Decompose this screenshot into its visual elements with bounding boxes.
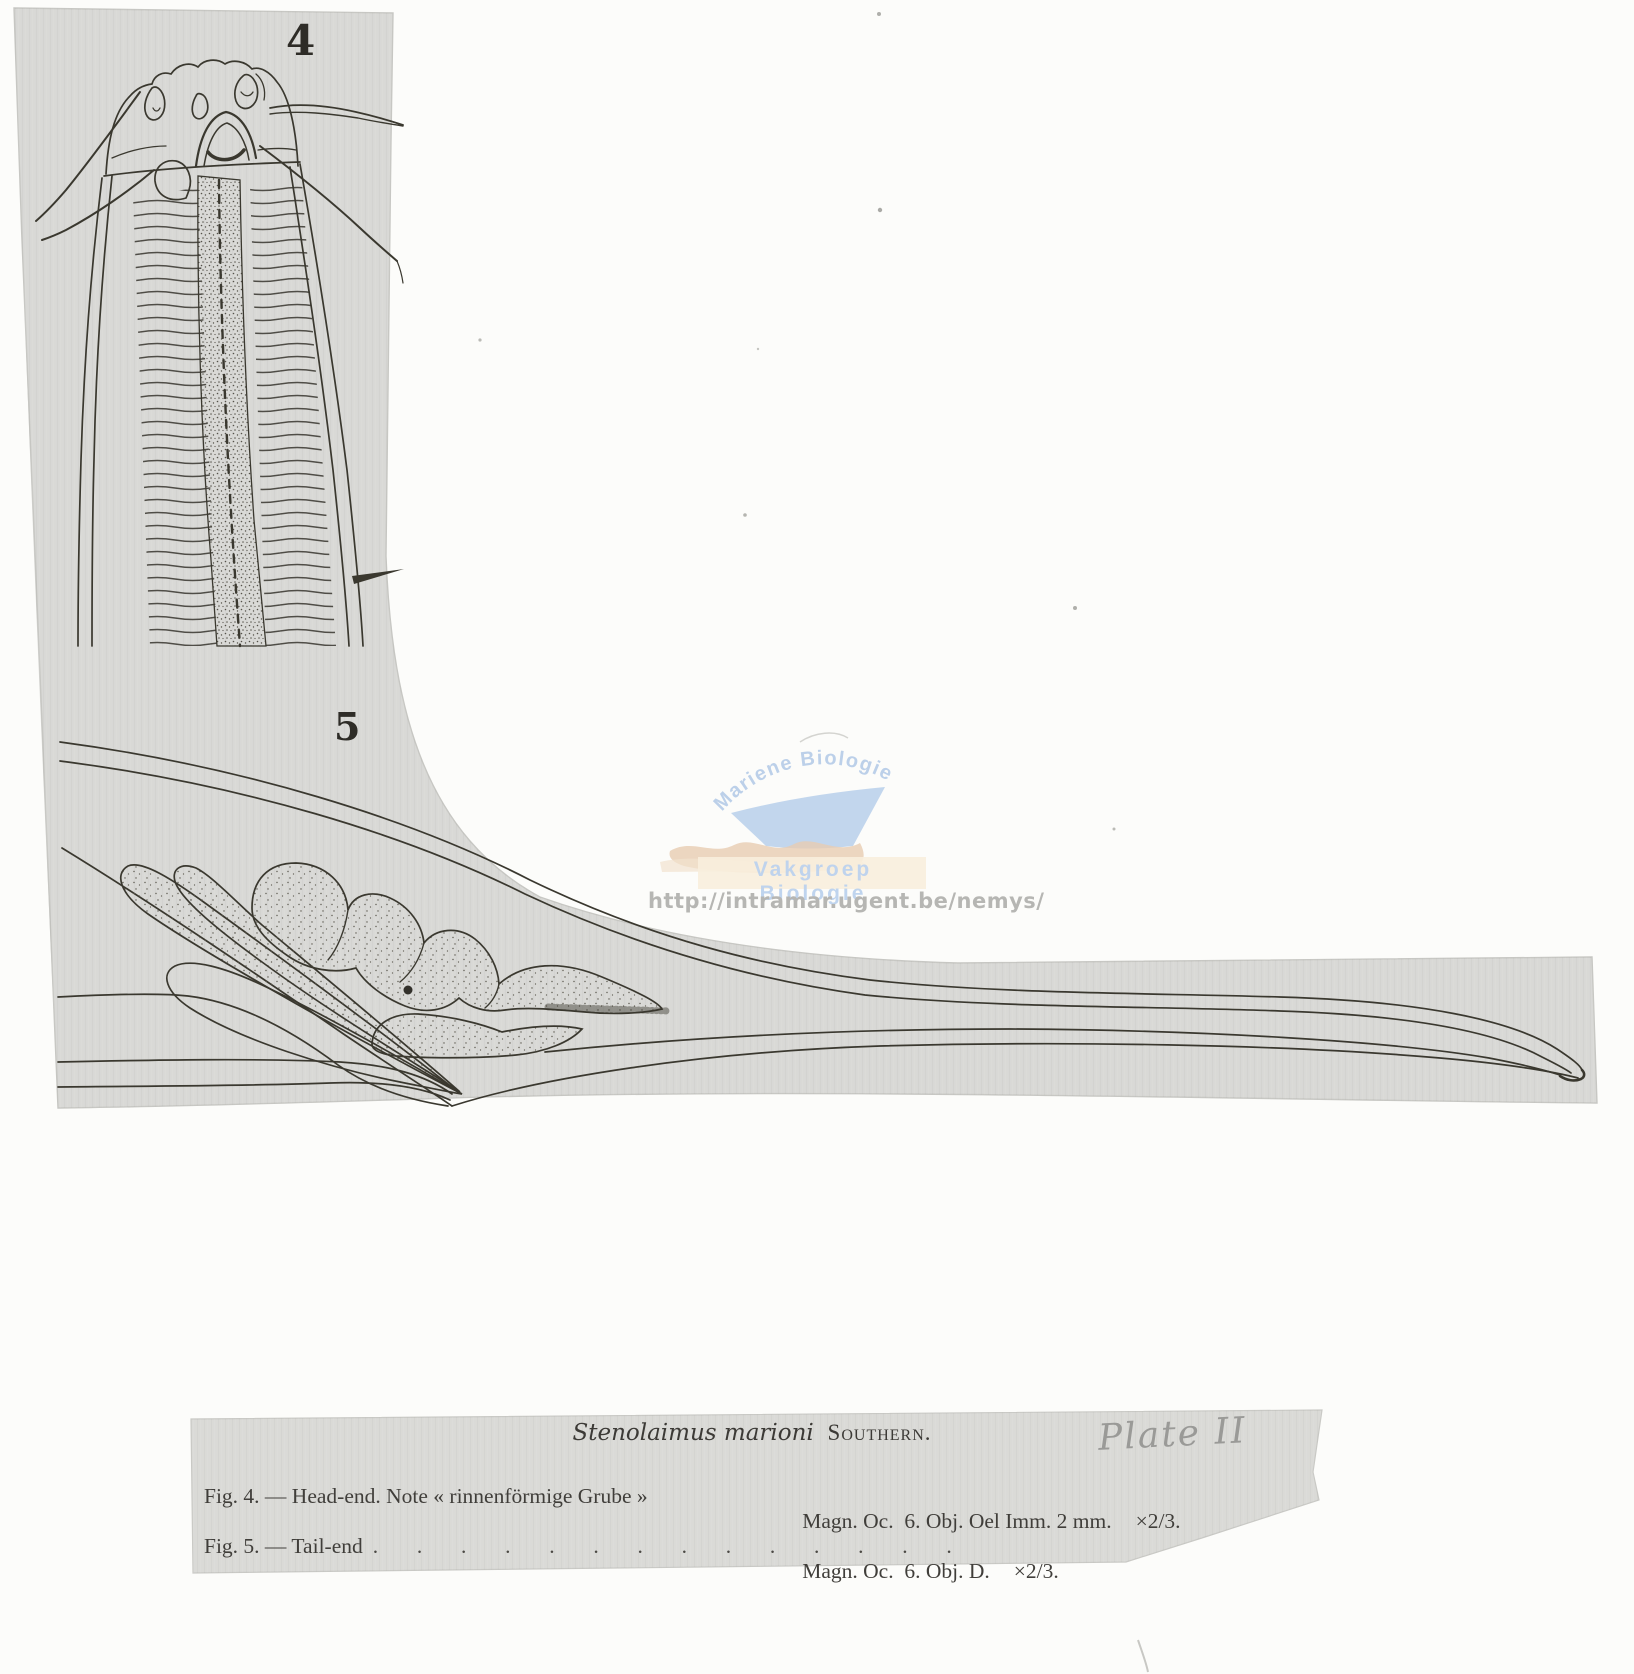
gland-nucleus-dot [404,986,413,995]
scale-text: ×2/3. [1136,1509,1181,1533]
caption-fig4-text: Fig. 4. — Head-end. Note « rinnenförmige… [204,1484,648,1509]
boat-hull-icon [731,787,885,849]
caption-fig5-label: Fig. 5. — Tail-end [204,1534,363,1558]
figure-5-number: 5 [334,704,360,749]
scanned-plate-page: Mariene Biologie 4 5 Vakgroep Biologie h… [0,0,1634,1674]
watermark-url-text: http://intramar.ugent.be/nemys/ [648,889,1044,913]
handwritten-plate-note: Plate II [1097,1410,1248,1459]
magnification-text: Magn. Oc. 6. Obj. D. [802,1559,990,1583]
magnification-text: Magn. Oc. 6. Obj. Oel Imm. 2 mm. [802,1509,1111,1533]
species-name: Stenolaimus marioni [572,1420,813,1446]
faint-pencil-mark [800,733,848,742]
plate-title: Stenolaimus marioni Southern. [402,1420,1102,1446]
caption-fig5-magnification: Magn. Oc. 6. Obj. D.×2/3. [770,1534,1059,1609]
author-name: Southern. [828,1420,932,1445]
figure-4-number: 4 [286,16,315,65]
scale-text: ×2/3. [1014,1559,1059,1583]
